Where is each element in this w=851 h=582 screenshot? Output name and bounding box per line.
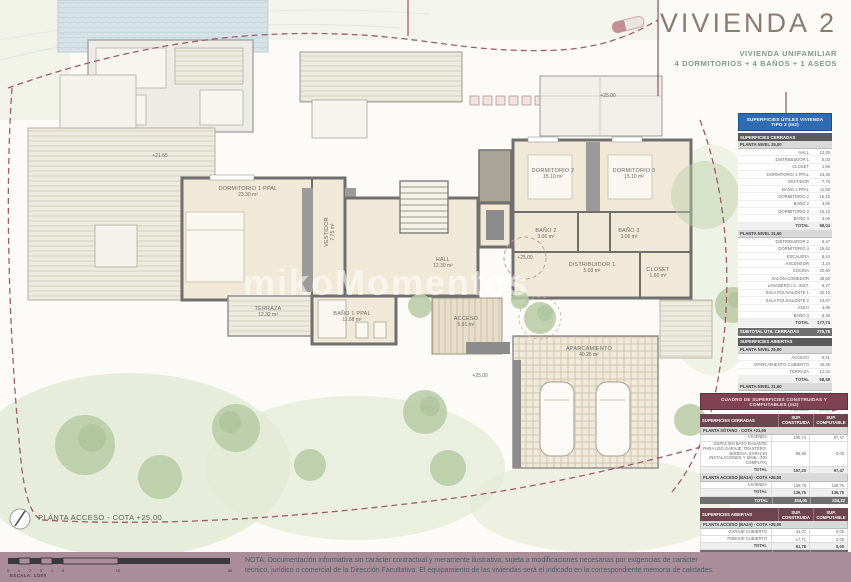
built-row-constructed: 136,75 bbox=[771, 482, 809, 488]
areas-row: VESTIDOR7,75 bbox=[738, 179, 832, 186]
areas-total-value: 177,74 bbox=[814, 320, 830, 325]
built-row-constructed: 44,07 bbox=[771, 529, 809, 535]
brand-logo-icon bbox=[608, 12, 648, 36]
sheet-footer-bar: 0123451020 ESCALA: 1/200 NOTA: Documenta… bbox=[0, 552, 851, 582]
areas-row-value: 32,10 bbox=[814, 290, 830, 295]
areas-row-value: 24,07 bbox=[814, 298, 830, 303]
areas-total-label: TOTAL bbox=[740, 320, 814, 325]
built-total-constructed: 61,78 bbox=[771, 543, 809, 549]
areas-row-value: 12,32 bbox=[814, 369, 830, 374]
areas-row-label: ASCENSOR bbox=[740, 261, 814, 266]
areas-row-value: 40,26 bbox=[814, 362, 830, 367]
built-row-label: GARAJE CUBIERTO bbox=[701, 529, 771, 535]
room-area: 12.32 m² bbox=[254, 312, 281, 318]
room-area: 23.30 m² bbox=[219, 192, 278, 198]
areas-row: HALL12,30 bbox=[738, 149, 832, 156]
built-row-computable: 0,00 bbox=[809, 536, 847, 542]
scale-tick: 10 bbox=[116, 568, 120, 573]
built-total-computable: 97,47 bbox=[809, 467, 847, 473]
built-row-label: VIVIENDA bbox=[701, 482, 771, 488]
legal-note: NOTA: Documentación informativa sin cará… bbox=[245, 556, 845, 575]
built-level-header: PLANTA ACCESO (BAJA) - COTA +25,00 bbox=[700, 521, 848, 529]
built-level-header: PLANTA ACCESO (BAJA) - COTA +25,00 bbox=[700, 474, 848, 482]
built-block-name: SUPERFICIES CERRADAS bbox=[700, 417, 778, 425]
areas-row: SALA POLIVALENTE 224,07 bbox=[738, 297, 832, 304]
room-area: 5.03 m² bbox=[569, 268, 616, 274]
areas-row-value: 20,60 bbox=[814, 268, 830, 273]
level-marker: +25.00 bbox=[472, 373, 487, 379]
areas-total-value: 58,49 bbox=[814, 377, 830, 382]
areas-row: DISTRIBUIDOR 28,47 bbox=[738, 238, 832, 245]
built-total-label: TOTAL bbox=[701, 467, 771, 473]
areas-row-label: ESCALERA bbox=[740, 254, 814, 259]
sheet-title: VIVIENDA 2 bbox=[660, 8, 837, 39]
areas-row: DORMITORIO 1 PPAL23,30 bbox=[738, 171, 832, 178]
legal-note-line1: NOTA: Documentación informativa sin cará… bbox=[245, 556, 845, 566]
built-table-title: CUADRO DE SUPERFICIES CONSTRUIDAS Y COMP… bbox=[700, 393, 848, 410]
areas-row: BAÑO 33,06 bbox=[738, 215, 832, 222]
areas-row: ESCALERA6,44 bbox=[738, 253, 832, 260]
built-row-label: VIVIENDA bbox=[701, 435, 771, 441]
room-area: 1.66 m² bbox=[646, 273, 669, 279]
areas-row: SALÓN-COMEDOR48,60 bbox=[738, 275, 832, 282]
areas-row-label: DISTRIBUIDOR 1 bbox=[740, 157, 814, 162]
level-marker: +25.00 bbox=[600, 93, 615, 99]
level-marker: +25.00 bbox=[517, 255, 532, 261]
areas-row-label: SALÓN-COMEDOR bbox=[740, 276, 814, 281]
areas-row-label: COCINA bbox=[740, 268, 814, 273]
scale-tick: 5 bbox=[62, 568, 64, 573]
areas-row-label: SALA POLIVALENTE 1 bbox=[740, 290, 814, 295]
room-label: BAÑO 1 PPAL11.68 m² bbox=[333, 311, 371, 323]
areas-row-value: 23,30 bbox=[814, 172, 830, 177]
areas-row-value: 15,10 bbox=[814, 209, 830, 214]
room-label: BAÑO 23.06 m² bbox=[535, 228, 556, 240]
room-area: 15.10 m² bbox=[532, 174, 575, 180]
areas-row: BAÑO 23,06 bbox=[738, 201, 832, 208]
areas-row-label: BAÑO 3 bbox=[740, 216, 814, 221]
room-area: 11.68 m² bbox=[333, 317, 371, 323]
built-total-label: TOTAL bbox=[701, 543, 771, 549]
areas-row: TERRAZA12,32 bbox=[738, 369, 832, 376]
legal-note-line2: técnico, jurídico o comercial de la Dire… bbox=[245, 566, 845, 576]
built-block-total-computable: 234,22 bbox=[810, 497, 848, 505]
built-block-name: SUPERFICIES ABIERTAS bbox=[700, 511, 778, 519]
built-total-computable: 0,00 bbox=[809, 543, 847, 549]
areas-group-header: SUPERFICIES ABIERTAS bbox=[738, 338, 832, 346]
room-label: DISTRIBUIDOR 15.03 m² bbox=[569, 262, 616, 274]
areas-group-header: SUPERFICIES CERRADAS bbox=[738, 133, 832, 141]
areas-row: ACCESO5,91 bbox=[738, 354, 832, 361]
areas-row-value: 4,95 bbox=[814, 305, 830, 310]
areas-row-value: 12,30 bbox=[814, 150, 830, 155]
plan-title: PLANTA ACCESO - COTA +25,00 bbox=[38, 513, 162, 522]
areas-row: DORMITORIO 315,10 bbox=[738, 208, 832, 215]
room-label: BAÑO 33.06 m² bbox=[618, 228, 639, 240]
scale-tick: 4 bbox=[51, 568, 53, 573]
built-level-total: TOTAL136,75136,75 bbox=[700, 489, 848, 496]
built-total-constructed: 197,30 bbox=[771, 467, 809, 473]
built-block-total-label: TOTAL bbox=[700, 497, 772, 505]
areas-row: BAÑO 46,48 bbox=[738, 312, 832, 319]
areas-subtotal-value: 275,78 bbox=[812, 329, 830, 334]
north-icon bbox=[10, 509, 30, 529]
areas-row-label: APARCAMIENTO CUBIERTO bbox=[740, 362, 814, 367]
areas-row-value: 3,24 bbox=[814, 261, 830, 266]
areas-level-header: PLANTA NIVEL 21,60 bbox=[738, 230, 832, 238]
built-col-header: SUP. CONSTRUIDA bbox=[778, 414, 813, 427]
areas-row-label: ACCESO bbox=[740, 355, 814, 360]
built-block-header: SUPERFICIES CERRADASSUP. CONSTRUIDASUP. … bbox=[700, 414, 848, 427]
areas-row: DORMITORIO 215,10 bbox=[738, 193, 832, 200]
areas-row: SALA POLIVALENTE 132,10 bbox=[738, 290, 832, 297]
areas-row-value: 6,27 bbox=[814, 283, 830, 288]
scale-tick: 0 bbox=[7, 568, 9, 573]
built-row-computable: 0,00 bbox=[809, 442, 847, 466]
built-block-header: SUPERFICIES ABIERTASSUP. CONSTRUIDASUP. … bbox=[700, 508, 848, 521]
areas-row-label: TERRAZA bbox=[740, 369, 814, 374]
areas-row-label: CLOSET bbox=[740, 164, 814, 169]
built-block-total: TOTAL334,05234,22 bbox=[700, 497, 848, 505]
areas-row-value: 5,91 bbox=[814, 355, 830, 360]
areas-row-label: BAÑO 4 bbox=[740, 313, 814, 318]
areas-level-total: TOTAL58,49 bbox=[738, 376, 832, 383]
room-area: 15.10 m² bbox=[613, 174, 656, 180]
room-area: 3.06 m² bbox=[618, 234, 639, 240]
areas-row-value: 1,66 bbox=[814, 164, 830, 169]
built-row-computable: 0,00 bbox=[809, 529, 847, 535]
areas-row: BAÑO 1 PPAL11,68 bbox=[738, 186, 832, 193]
built-row-computable: 136,75 bbox=[809, 482, 847, 488]
areas-row-value: 6,48 bbox=[814, 313, 830, 318]
areas-row: COCINA20,60 bbox=[738, 268, 832, 275]
built-row: PORCHE CUBIERTO17,710,00 bbox=[700, 536, 848, 543]
areas-total-label: TOTAL bbox=[740, 223, 814, 228]
areas-row-label: VESTIDOR bbox=[740, 179, 814, 184]
areas-row-label: HALL bbox=[740, 150, 814, 155]
areas-total-value: 98,04 bbox=[814, 223, 830, 228]
areas-row: APARCAMIENTO CUBIERTO40,26 bbox=[738, 361, 832, 368]
areas-row-value: 16,52 bbox=[814, 246, 830, 251]
areas-row-value: 15,10 bbox=[814, 194, 830, 199]
room-label: TERRAZA12.32 m² bbox=[254, 306, 281, 318]
areas-row: ASEO4,95 bbox=[738, 305, 832, 312]
built-row: GARAJE CUBIERTO44,070,00 bbox=[700, 529, 848, 536]
built-row: ESPACIOS BAJO RASANTE PARA USO GARAJE, T… bbox=[700, 442, 848, 467]
areas-row: DORMITORIO 416,52 bbox=[738, 246, 832, 253]
built-col-header: SUP. CONSTRUIDA bbox=[778, 508, 813, 521]
room-label: DORMITORIO 215.10 m² bbox=[532, 168, 575, 180]
areas-row-value: 6,44 bbox=[814, 254, 830, 259]
built-row: VIVIENDA136,75136,75 bbox=[700, 482, 848, 489]
room-area: 5.91 m² bbox=[454, 322, 478, 328]
areas-row-label: DORMITORIO 1 PPAL bbox=[740, 172, 814, 177]
areas-row: ASCENSOR3,24 bbox=[738, 260, 832, 267]
areas-total-label: TOTAL bbox=[740, 377, 814, 382]
areas-row: CLOSET1,66 bbox=[738, 164, 832, 171]
areas-row-value: 8,47 bbox=[814, 239, 830, 244]
dwelling-program: 4 DORMITORIOS + 4 BAÑOS + 1 ASEOS bbox=[608, 59, 837, 69]
scale-label: ESCALA: 1/200 bbox=[10, 573, 46, 578]
room-label: APARCAMIENTO40.26 m² bbox=[566, 346, 612, 358]
areas-level-header: PLANTA NIVEL 21,60 bbox=[738, 383, 832, 391]
areas-row-label: BAÑO 2 bbox=[740, 201, 814, 206]
areas-row-value: 3,06 bbox=[814, 201, 830, 206]
built-block-total-constructed: 334,05 bbox=[772, 497, 810, 505]
areas-subtotal-label: SUBTOTAL ÚTIL CERRADAS bbox=[740, 329, 812, 334]
room-label: ACCESO5.91 m² bbox=[454, 316, 478, 328]
room-label: DORMITORIO 1 PPAL23.30 m² bbox=[219, 186, 278, 198]
areas-row-label: DORMITORIO 2 bbox=[740, 194, 814, 199]
level-marker: +21.65 bbox=[152, 153, 167, 159]
built-col-header: SUP. COMPUTABLE bbox=[813, 414, 848, 427]
room-area: 7.75 m² bbox=[330, 217, 336, 247]
areas-level-header: PLANTA NIVEL 25,00 bbox=[738, 346, 832, 354]
drawing-sheet: VIVIENDA 2 VIVIENDA UNIFAMILIAR 4 DORMIT… bbox=[0, 0, 851, 582]
areas-row-value: 3,06 bbox=[814, 216, 830, 221]
room-area: 40.26 m² bbox=[566, 352, 612, 358]
areas-row-label: SALA POLIVALENTE 2 bbox=[740, 298, 814, 303]
room-area: 12.30 m² bbox=[433, 263, 453, 269]
areas-subtotal: SUBTOTAL ÚTIL CERRADAS275,78 bbox=[738, 328, 832, 336]
built-level-header: PLANTA SÓTANO - COTA +21,60 bbox=[700, 427, 848, 435]
built-row-constructed: 100,74 bbox=[771, 435, 809, 441]
room-label: HALL12.30 m² bbox=[433, 257, 453, 269]
title-block: VIVIENDA 2 VIVIENDA UNIFAMILIAR 4 DORMIT… bbox=[608, 8, 837, 69]
areas-row-value: 11,68 bbox=[814, 187, 830, 192]
built-row-computable: 97,47 bbox=[809, 435, 847, 441]
areas-row: DISTRIBUIDOR 15,03 bbox=[738, 156, 832, 163]
built-total-constructed: 136,75 bbox=[771, 489, 809, 495]
areas-row-label: DISTRIBUIDOR 2 bbox=[740, 239, 814, 244]
areas-row-label: ASEO bbox=[740, 305, 814, 310]
built-row-constructed: 17,71 bbox=[771, 536, 809, 542]
areas-row-label: DORMITORIO 3 bbox=[740, 209, 814, 214]
built-level-total: TOTAL61,780,00 bbox=[700, 543, 848, 550]
built-total-computable: 136,75 bbox=[809, 489, 847, 495]
areas-row-value: 5,03 bbox=[814, 157, 830, 162]
areas-row-label: BAÑO 1 PPAL bbox=[740, 187, 814, 192]
dwelling-type: VIVIENDA UNIFAMILIAR bbox=[608, 49, 837, 59]
graphic-scale-bar bbox=[8, 556, 238, 568]
built-row-label: ESPACIOS BAJO RASANTE PARA USO GARAJE, T… bbox=[701, 442, 771, 466]
areas-row-value: 48,60 bbox=[814, 276, 830, 281]
areas-row-label: LAVADERO / C. INST. bbox=[740, 283, 814, 288]
room-label: DORMITORIO 315.10 m² bbox=[613, 168, 656, 180]
areas-row-label: DORMITORIO 4 bbox=[740, 246, 814, 251]
areas-row: LAVADERO / C. INST.6,27 bbox=[738, 282, 832, 289]
built-col-header: SUP. COMPUTABLE bbox=[813, 508, 848, 521]
built-total-label: TOTAL bbox=[701, 490, 771, 496]
built-level-total: TOTAL197,3097,47 bbox=[700, 467, 848, 474]
areas-level-total: TOTAL98,04 bbox=[738, 223, 832, 230]
room-label: VESTIDOR7.75 m² bbox=[324, 217, 336, 247]
areas-row-value: 7,75 bbox=[814, 179, 830, 184]
built-row-label: PORCHE CUBIERTO bbox=[701, 536, 771, 542]
room-area: 3.06 m² bbox=[535, 234, 556, 240]
areas-table-title: SUPERFICIES ÚTILES VIVIENDA TIPO 2 (m2) bbox=[738, 113, 832, 131]
room-label: CLOSET1.66 m² bbox=[646, 267, 669, 279]
built-row-constructed: 96,56 bbox=[771, 442, 809, 466]
scale-tick: 20 bbox=[228, 568, 232, 573]
areas-level-header: PLANTA NIVEL 25,00 bbox=[738, 141, 832, 149]
areas-level-total: TOTAL177,74 bbox=[738, 319, 832, 326]
